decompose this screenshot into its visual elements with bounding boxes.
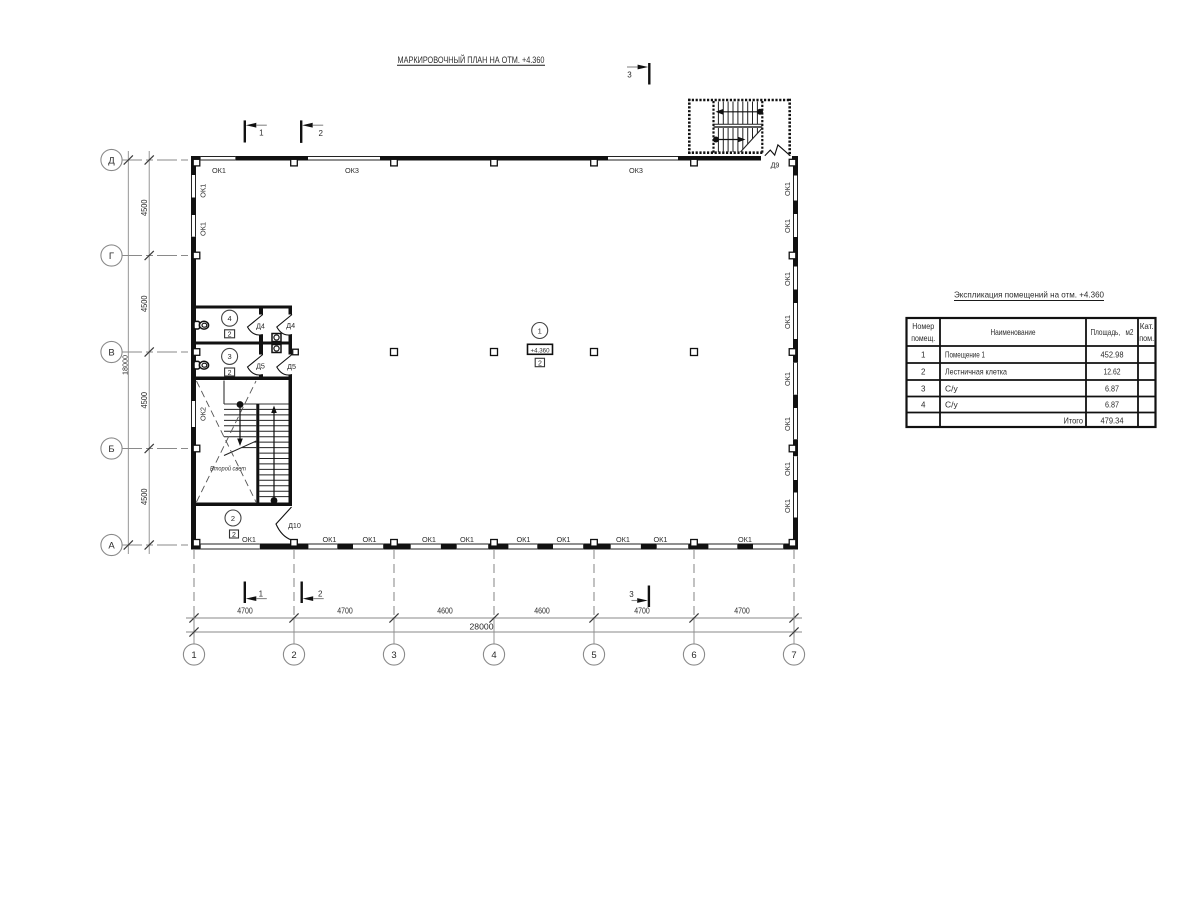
svg-text:ОК2: ОК2 <box>198 407 207 421</box>
svg-text:Д: Д <box>108 155 115 166</box>
svg-text:С/у: С/у <box>945 383 959 393</box>
svg-text:ОК1: ОК1 <box>738 535 752 544</box>
svg-text:2: 2 <box>232 532 236 539</box>
svg-text:Д10: Д10 <box>288 521 301 530</box>
svg-text:Площадь, м2: Площадь, м2 <box>1091 327 1134 337</box>
svg-text:4600: 4600 <box>437 606 453 615</box>
svg-text:3: 3 <box>921 384 926 393</box>
svg-text:пом.: пом. <box>1139 334 1154 343</box>
svg-text:ОК1: ОК1 <box>616 535 630 544</box>
svg-text:Номер: Номер <box>912 322 934 331</box>
svg-text:1: 1 <box>259 129 264 138</box>
svg-text:Второй свет: Второй свет <box>210 466 246 473</box>
svg-text:12.62: 12.62 <box>1104 367 1121 377</box>
svg-text:2: 2 <box>228 370 232 377</box>
svg-text:ОК1: ОК1 <box>242 535 256 544</box>
svg-text:ОК1: ОК1 <box>783 219 792 233</box>
svg-text:Экспликация помещений на отм.: Экспликация помещений на отм. +4.360 <box>954 290 1104 300</box>
svg-text:Наименование: Наименование <box>991 327 1036 337</box>
svg-text:4700: 4700 <box>337 606 353 615</box>
svg-text:4700: 4700 <box>237 606 253 615</box>
svg-text:ОК1: ОК1 <box>783 272 792 286</box>
svg-text:ОК3: ОК3 <box>345 166 359 175</box>
svg-text:2: 2 <box>538 360 542 367</box>
svg-text:4500: 4500 <box>140 199 149 216</box>
svg-text:ОК1: ОК1 <box>783 462 792 476</box>
svg-text:ОК1: ОК1 <box>422 535 436 544</box>
svg-text:+4.360: +4.360 <box>531 347 550 354</box>
svg-text:3: 3 <box>391 650 396 661</box>
svg-text:ОК1: ОК1 <box>517 535 531 544</box>
svg-text:5: 5 <box>591 650 596 661</box>
svg-text:Кат.: Кат. <box>1140 322 1154 331</box>
svg-text:1: 1 <box>191 650 196 661</box>
svg-text:4500: 4500 <box>140 392 149 409</box>
svg-text:ОК1: ОК1 <box>783 417 792 431</box>
svg-text:1: 1 <box>921 351 926 360</box>
svg-text:452.98: 452.98 <box>1101 350 1124 360</box>
svg-text:В: В <box>108 347 114 358</box>
svg-text:7: 7 <box>791 650 796 661</box>
svg-text:6: 6 <box>691 650 696 661</box>
svg-text:ОК1: ОК1 <box>323 535 337 544</box>
svg-text:ОК1: ОК1 <box>783 315 792 329</box>
svg-text:2: 2 <box>231 514 235 523</box>
svg-text:С/у: С/у <box>945 400 959 410</box>
svg-text:помещ.: помещ. <box>911 334 935 343</box>
svg-text:4700: 4700 <box>734 606 750 615</box>
svg-text:4: 4 <box>921 401 926 410</box>
svg-text:1: 1 <box>259 590 264 599</box>
svg-text:4: 4 <box>491 650 496 661</box>
svg-text:ОК1: ОК1 <box>460 535 474 544</box>
svg-text:4500: 4500 <box>140 295 149 312</box>
svg-text:Д9: Д9 <box>771 160 780 169</box>
svg-text:4: 4 <box>228 314 232 323</box>
svg-text:ОК1: ОК1 <box>198 184 207 198</box>
svg-text:МАРКИРОВОЧНЫЙ ПЛАН НА ОТМ. +4.: МАРКИРОВОЧНЫЙ ПЛАН НА ОТМ. +4.360 <box>398 54 545 65</box>
svg-text:ОК1: ОК1 <box>783 182 792 196</box>
svg-text:ОК1: ОК1 <box>783 372 792 386</box>
svg-text:2: 2 <box>291 650 296 661</box>
svg-text:4700: 4700 <box>634 606 650 615</box>
svg-text:3: 3 <box>627 71 632 80</box>
svg-text:ОК1: ОК1 <box>654 535 668 544</box>
svg-text:ОК1: ОК1 <box>198 222 207 236</box>
svg-text:Д4: Д4 <box>286 321 295 330</box>
svg-text:Итого: Итого <box>1064 416 1084 426</box>
svg-text:А: А <box>108 540 115 551</box>
svg-text:Г: Г <box>109 251 114 262</box>
svg-text:ОК1: ОК1 <box>557 535 571 544</box>
svg-text:2: 2 <box>318 129 323 138</box>
svg-text:4600: 4600 <box>534 606 550 615</box>
svg-text:3: 3 <box>228 352 232 361</box>
svg-text:Лестничная клетка: Лестничная клетка <box>945 367 1007 377</box>
svg-text:Д5: Д5 <box>287 362 296 371</box>
svg-text:6.87: 6.87 <box>1105 383 1119 393</box>
svg-text:Д4: Д4 <box>256 321 265 330</box>
svg-text:ОК1: ОК1 <box>212 166 226 175</box>
svg-text:6.87: 6.87 <box>1105 400 1119 410</box>
svg-text:28000: 28000 <box>470 623 495 632</box>
svg-text:3: 3 <box>629 590 634 599</box>
svg-text:Д5: Д5 <box>256 362 265 371</box>
svg-text:ОК1: ОК1 <box>783 499 792 513</box>
svg-text:Помещение 1: Помещение 1 <box>945 350 985 360</box>
svg-text:2: 2 <box>228 332 232 339</box>
svg-text:1: 1 <box>538 326 542 335</box>
svg-text:18000: 18000 <box>120 355 129 375</box>
svg-text:479.34: 479.34 <box>1101 416 1124 426</box>
svg-text:2: 2 <box>318 590 323 599</box>
svg-text:Б: Б <box>108 444 114 455</box>
svg-text:2: 2 <box>921 368 926 377</box>
svg-text:4500: 4500 <box>140 488 149 505</box>
svg-text:ОК1: ОК1 <box>363 535 377 544</box>
svg-text:ОК3: ОК3 <box>629 166 643 175</box>
